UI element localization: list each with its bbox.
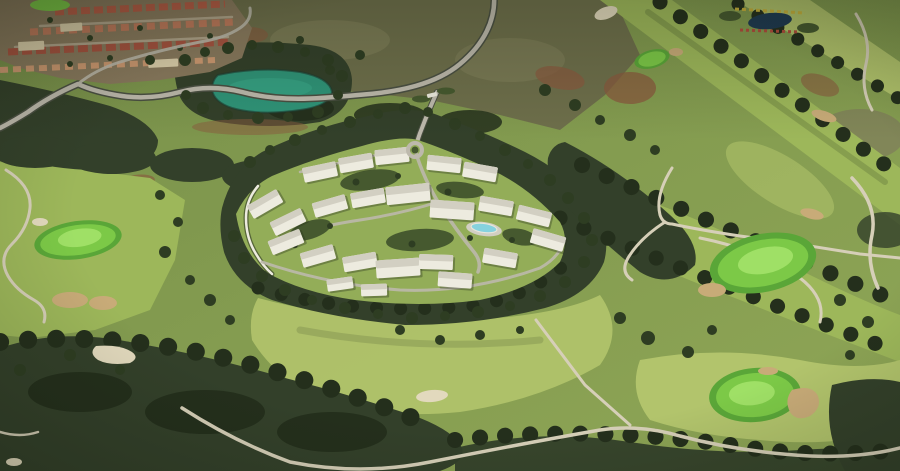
aerial-scene (0, 0, 900, 471)
aerial-render (0, 0, 900, 471)
vignette-overlay (0, 0, 900, 471)
